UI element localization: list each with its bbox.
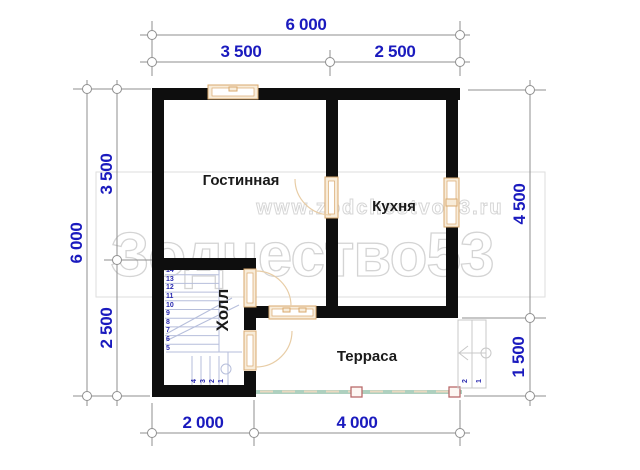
wall-interior-kitchen-lower	[326, 218, 338, 306]
dim-left-total: 6 000	[67, 222, 86, 263]
dim-top-right: 2 500	[374, 42, 415, 61]
dim-top-total: 6 000	[285, 15, 326, 34]
door-hall-terrace	[244, 331, 292, 370]
svg-text:8: 8	[166, 319, 170, 326]
dim-left-bottom: 2 500	[97, 307, 116, 348]
svg-text:5: 5	[166, 345, 170, 352]
svg-text:2: 2	[209, 379, 216, 383]
wall-passage-bottom	[244, 306, 270, 318]
room-label-hall: Холл	[213, 289, 232, 332]
wall-kitchen-bottom	[315, 306, 458, 318]
terrace-step-number: 2	[462, 379, 469, 383]
dim-bottom-right: 4 000	[336, 413, 377, 432]
dim-left-top: 3 500	[97, 153, 116, 194]
wall-hall-right-mid	[244, 318, 256, 330]
svg-text:12: 12	[166, 284, 174, 291]
dim-top-left: 3 500	[220, 42, 261, 61]
deck-post	[351, 387, 362, 397]
floor-plan-drawing: www.zodchestvo53.ru Зодчество53	[0, 0, 640, 470]
wall-exterior-top	[152, 88, 460, 100]
svg-text:6: 6	[166, 336, 170, 343]
room-label-living: Гостинная	[203, 172, 280, 189]
terrace-deck	[256, 387, 462, 397]
svg-text:3: 3	[200, 379, 207, 383]
dim-right-top: 4 500	[510, 183, 529, 224]
svg-text:4: 4	[191, 379, 198, 383]
stair-numbers-lower: 4 3 2 1	[191, 379, 225, 383]
svg-text:10: 10	[166, 302, 174, 309]
svg-text:1: 1	[218, 379, 225, 383]
floor-plan: www.zodchestvo53.ru Зодчество53	[0, 0, 640, 470]
room-label-terrace: Терраса	[337, 348, 398, 365]
wall-hall-bottom	[152, 385, 256, 397]
dim-right-bottom: 1 500	[509, 336, 528, 377]
terrace-step-number: 1	[476, 379, 483, 383]
svg-text:7: 7	[166, 327, 170, 334]
wall-interior-kitchen-upper	[326, 100, 338, 178]
svg-text:9: 9	[166, 310, 170, 317]
terrace-entry-steps: 2 1	[458, 320, 491, 388]
window-right	[444, 178, 459, 227]
dim-bottom-left: 2 000	[182, 413, 223, 432]
wall-exterior-left	[152, 88, 164, 397]
room-label-kitchen: Кухня	[372, 198, 416, 215]
svg-text:13: 13	[166, 276, 174, 283]
svg-text:11: 11	[166, 293, 174, 300]
wall-hall-top	[152, 258, 256, 270]
window-terrace-wall	[269, 306, 316, 319]
window-top	[208, 85, 258, 99]
door-swing-arc	[256, 331, 292, 367]
